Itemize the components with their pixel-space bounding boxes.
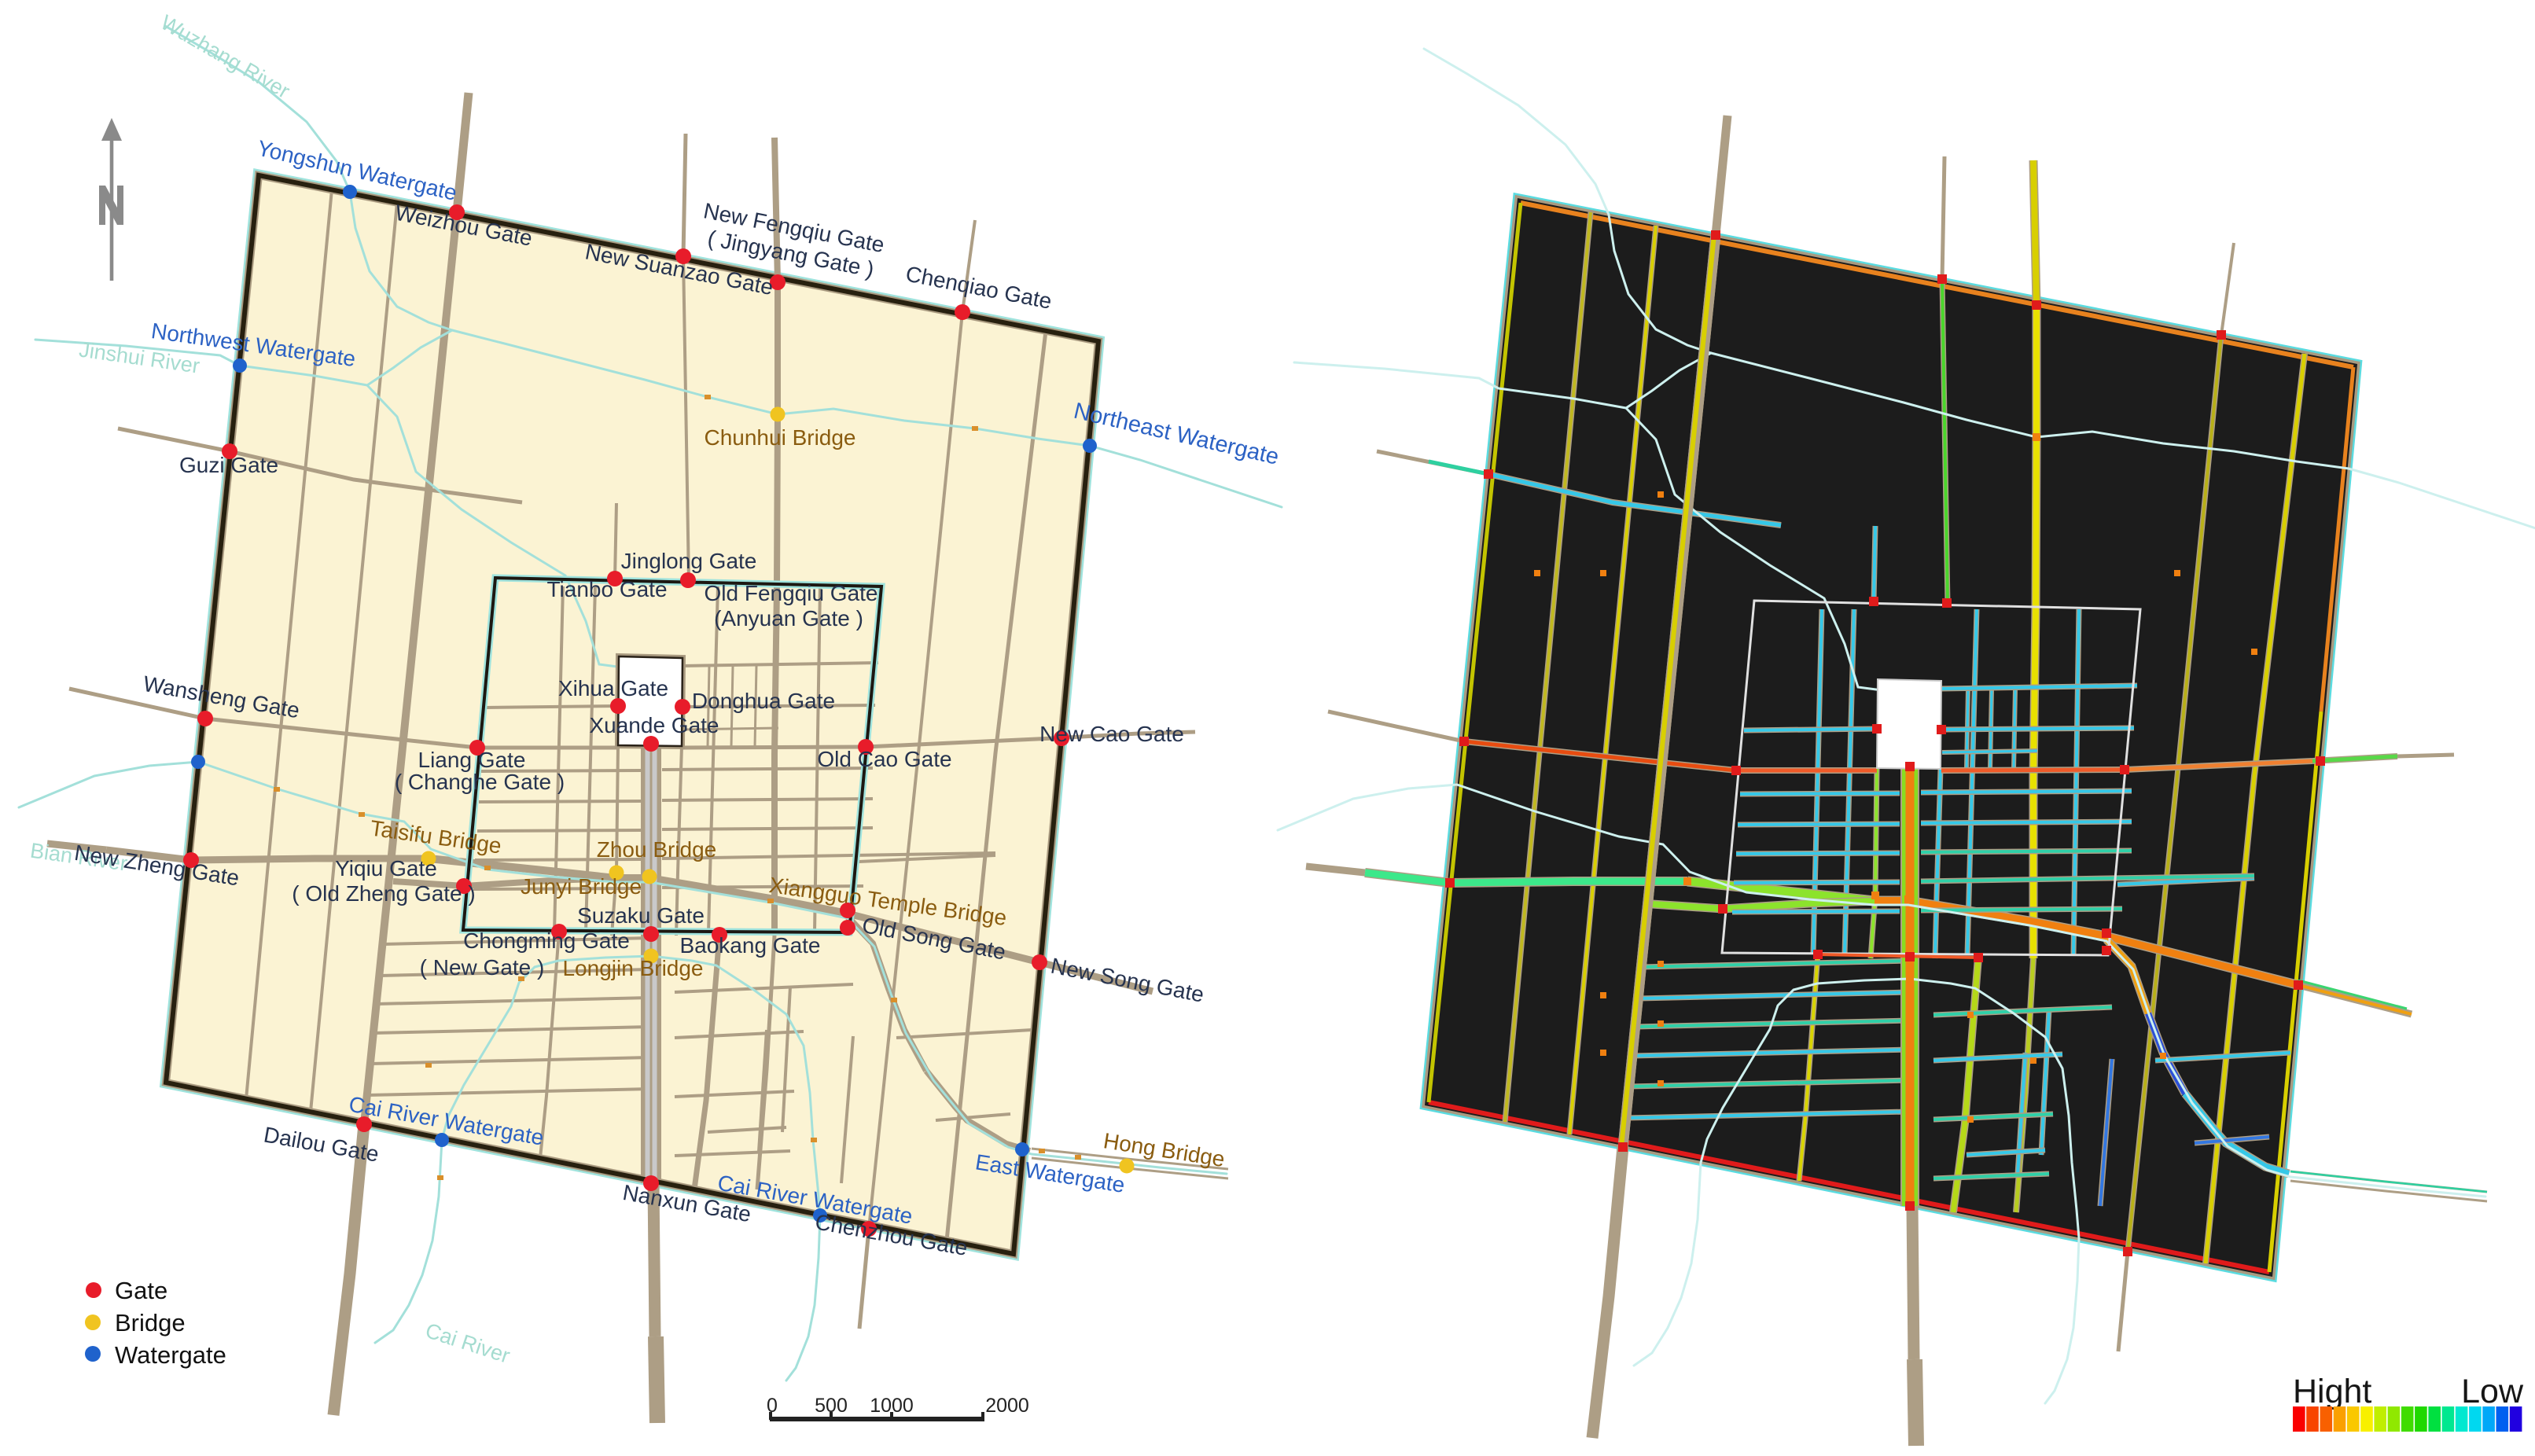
svg-text:( New Gate ): ( New Gate ) <box>420 955 545 980</box>
svg-text:Longjin Bridge: Longjin Bridge <box>562 956 703 980</box>
svg-text:Bridge: Bridge <box>115 1309 186 1337</box>
svg-text:( Old Zheng Gate ): ( Old Zheng Gate ) <box>292 881 475 906</box>
svg-text:0: 0 <box>767 1395 778 1417</box>
svg-text:Suzaku Gate: Suzaku Gate <box>577 903 705 928</box>
svg-text:Old Fengqiu Gate: Old Fengqiu Gate <box>704 581 877 605</box>
svg-text:Yiqiu Gate: Yiqiu Gate <box>335 856 437 881</box>
svg-text:Liang Gate: Liang Gate <box>418 748 526 772</box>
svg-text:New Cao Gate: New Cao Gate <box>1039 722 1184 746</box>
svg-text:Guzi Gate: Guzi Gate <box>179 453 278 477</box>
svg-text:Zhou Bridge: Zhou Bridge <box>597 837 717 862</box>
svg-text:Tianbo Gate: Tianbo Gate <box>546 577 667 601</box>
svg-text:Jinglong Gate: Jinglong Gate <box>621 549 757 573</box>
svg-text:Xuande Gate: Xuande Gate <box>589 713 719 737</box>
svg-text:(Anyuan Gate ): (Anyuan Gate ) <box>714 606 863 631</box>
svg-text:500: 500 <box>815 1395 848 1417</box>
svg-text:1000: 1000 <box>870 1395 914 1417</box>
svg-text:Xihua Gate: Xihua Gate <box>558 676 668 700</box>
svg-text:Chongming Gate: Chongming Gate <box>463 928 630 953</box>
svg-text:Hight: Hight <box>2293 1373 2371 1410</box>
svg-text:( Changhe Gate ): ( Changhe Gate ) <box>395 770 565 794</box>
svg-text:Junyi Bridge: Junyi Bridge <box>521 874 642 899</box>
svg-text:Old Cao Gate: Old Cao Gate <box>817 747 951 771</box>
svg-text:Donghua Gate: Donghua Gate <box>692 689 835 713</box>
svg-text:2000: 2000 <box>985 1395 1029 1417</box>
svg-text:Gate: Gate <box>115 1277 167 1304</box>
svg-text:Chunhui Bridge: Chunhui Bridge <box>704 425 855 450</box>
svg-text:Watergate: Watergate <box>115 1341 226 1369</box>
svg-text:Low: Low <box>2461 1373 2524 1410</box>
svg-text:Baokang Gate: Baokang Gate <box>679 933 820 958</box>
